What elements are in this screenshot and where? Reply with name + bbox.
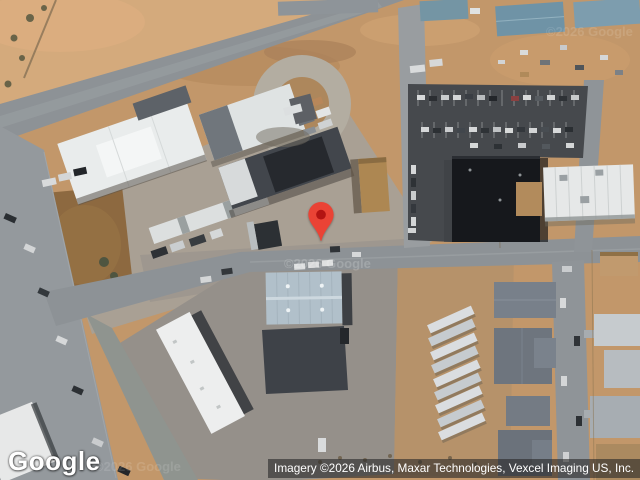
google-logo[interactable]: Google (8, 446, 101, 477)
map-pin-body (308, 202, 333, 241)
imagery-watermark: ©2026 Google (284, 256, 371, 271)
imagery-watermark: ©2026 Google (94, 459, 181, 474)
warehouse-building (262, 271, 352, 394)
attribution-bar: Imagery ©2026 Airbus, Maxar Technologies… (268, 459, 640, 478)
imagery-watermark: ©2026 Google (546, 24, 633, 39)
map-canvas[interactable]: ©2026 Google ©2026 Google ©2026 Google G… (0, 0, 640, 480)
map-pin-hole (316, 210, 326, 220)
map-pin[interactable] (308, 202, 334, 241)
